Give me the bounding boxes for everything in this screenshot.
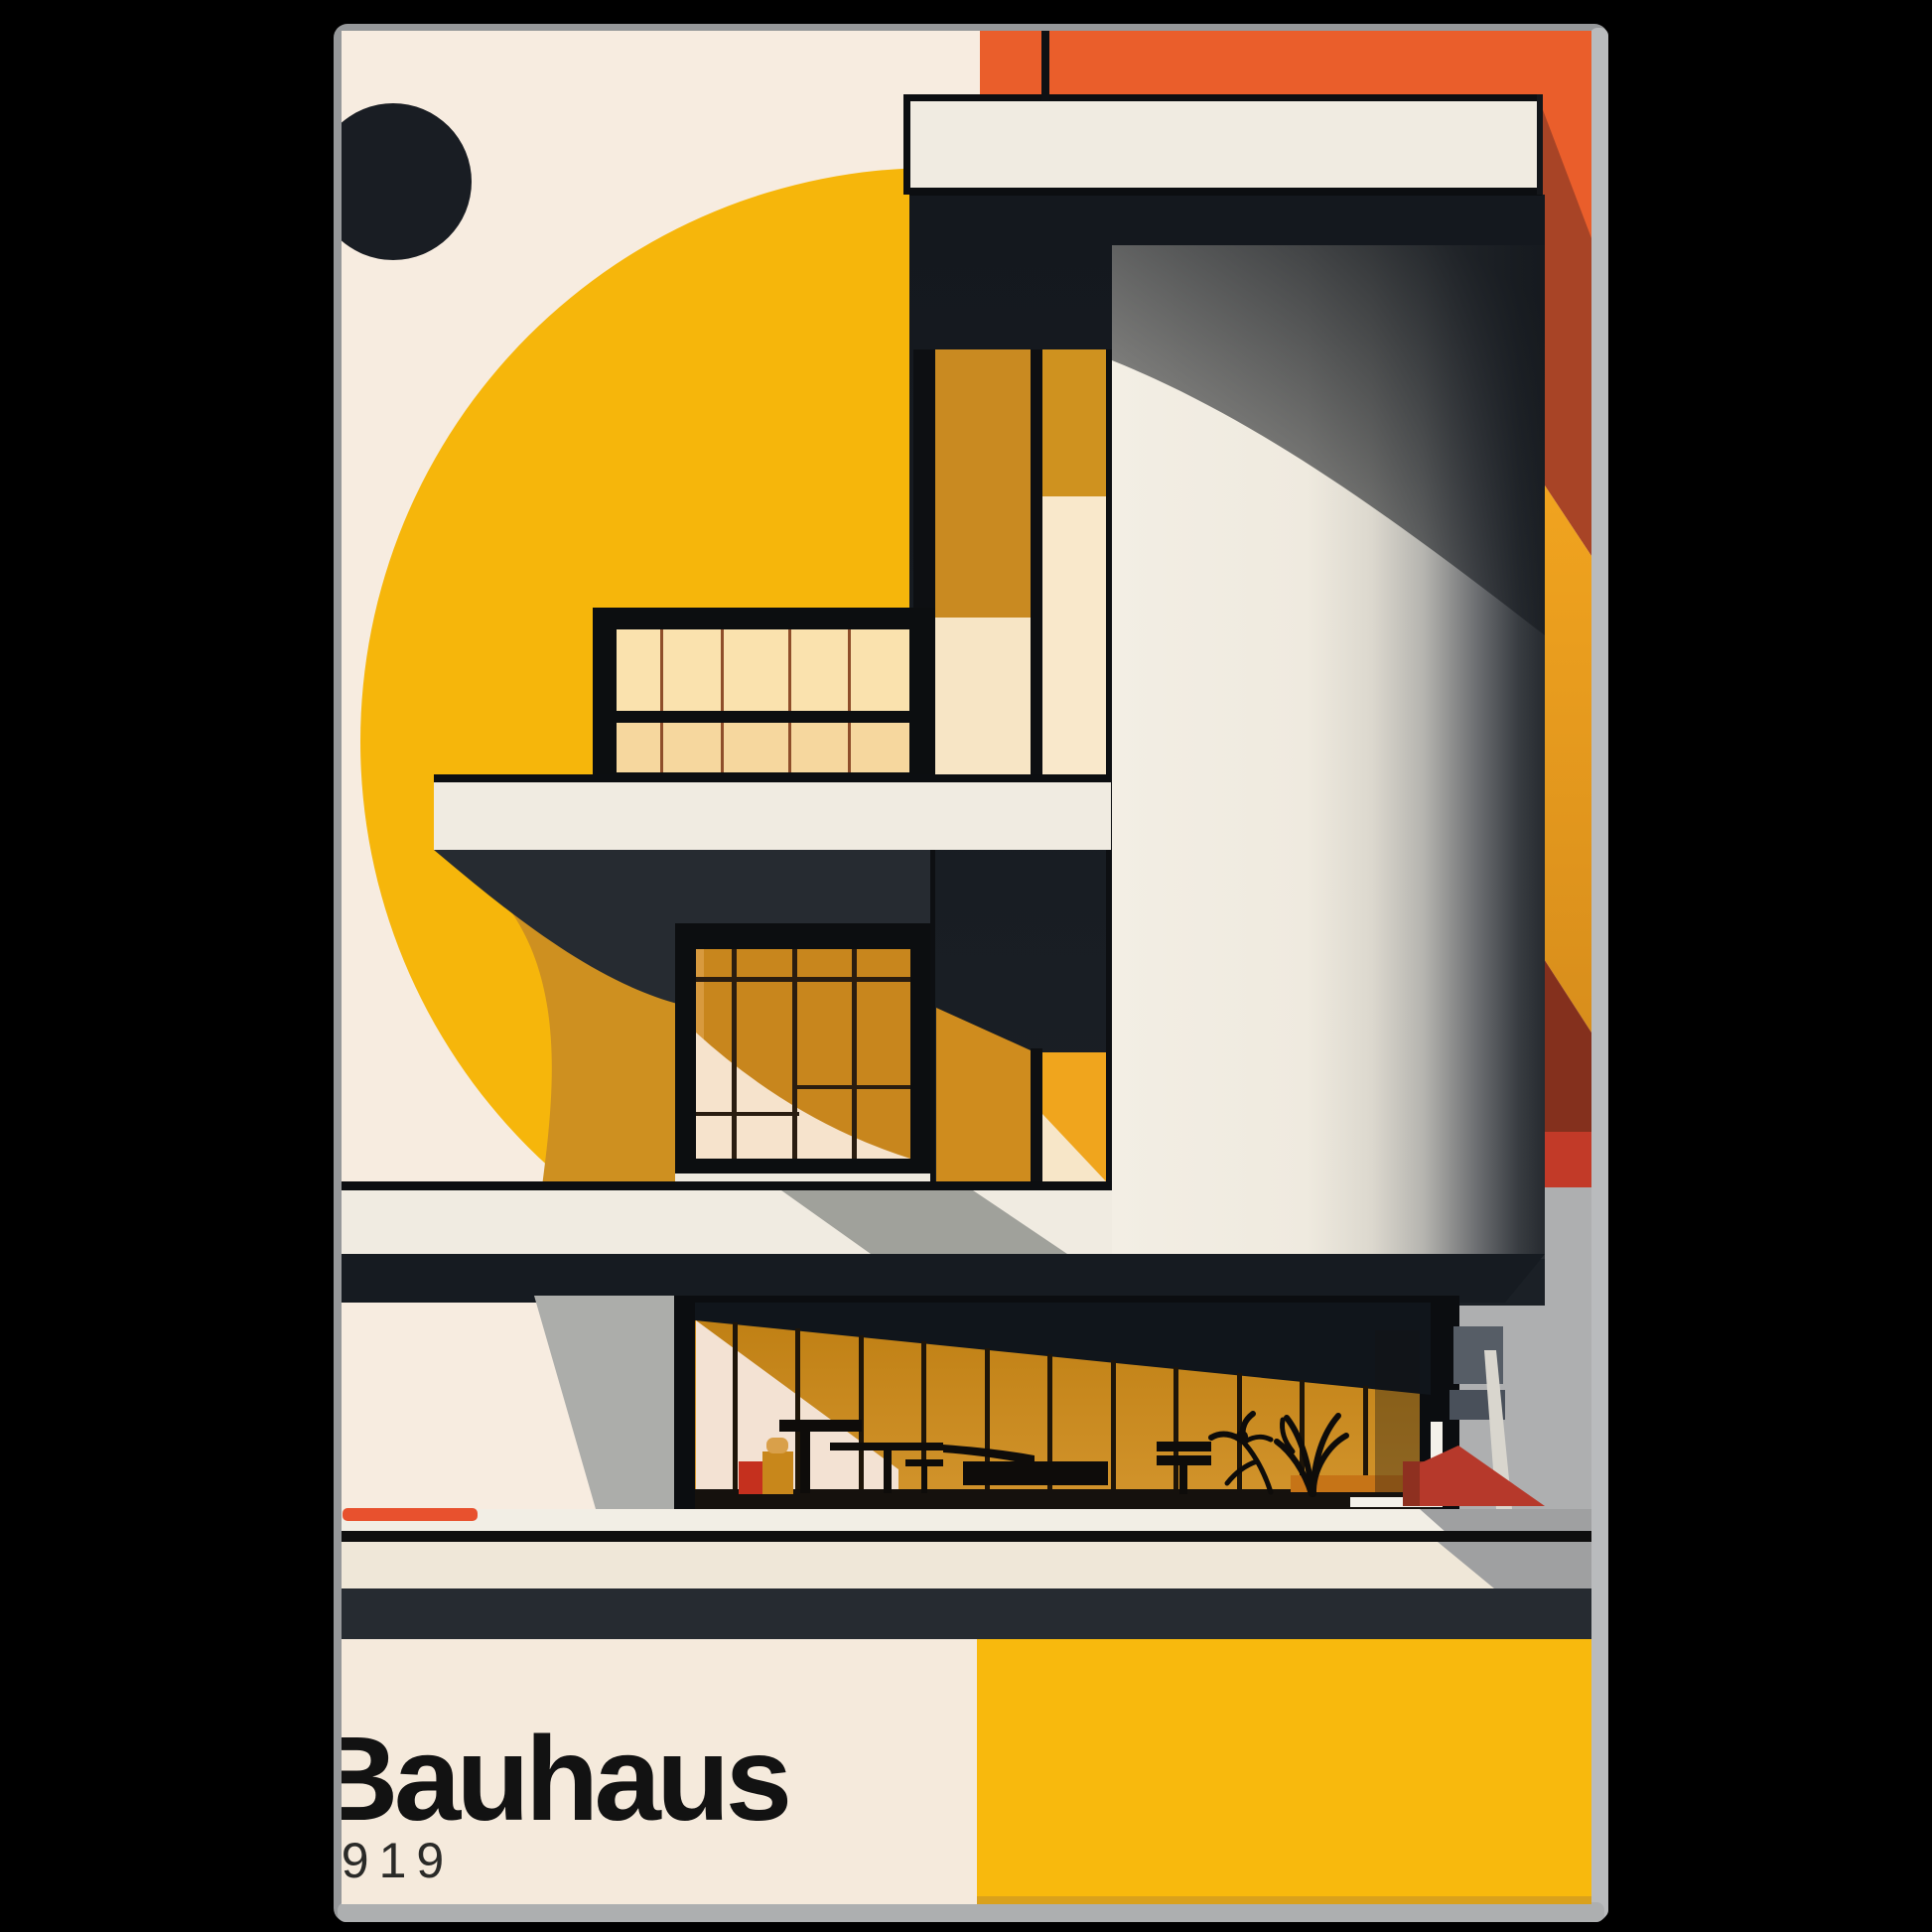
svg-text:Bauhaus: Bauhaus bbox=[312, 1711, 788, 1846]
